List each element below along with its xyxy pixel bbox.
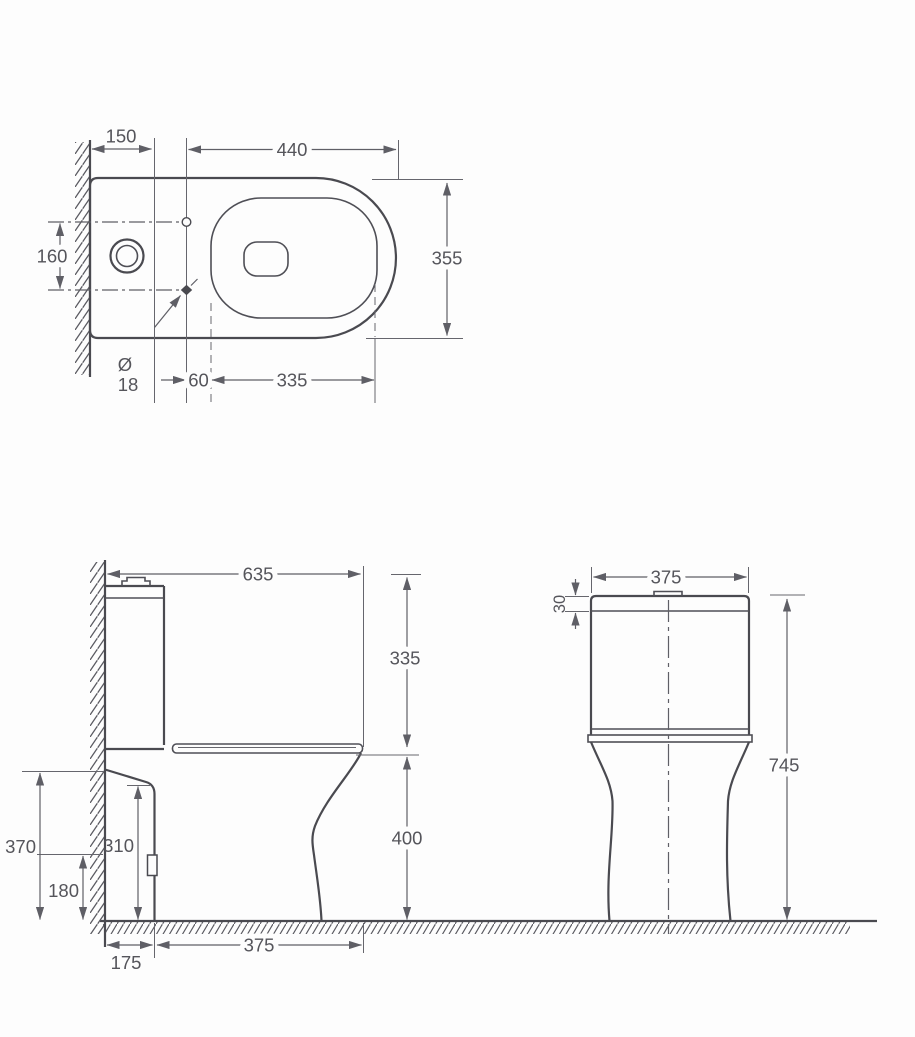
dim-label: 150: [106, 126, 137, 147]
wall-hatching: [75, 142, 90, 375]
dim-label: 160: [37, 246, 68, 267]
dim-lid-thickness: 30: [551, 579, 576, 629]
seat-opening-ring: [211, 198, 377, 318]
dim-opening-length: 335: [212, 370, 374, 391]
dim-label: 400: [392, 828, 423, 849]
water-inlet-inner: [117, 246, 138, 267]
marker-tick: [191, 279, 198, 286]
dim-label: 335: [277, 370, 308, 391]
dim-seat-height: 400: [392, 757, 423, 920]
dim-fixing-height: 310: [103, 787, 138, 920]
flush-button: [122, 578, 150, 587]
dim-rim-width: 355: [432, 183, 463, 336]
dim-label: 180: [48, 880, 79, 901]
seat-slab: [173, 744, 363, 753]
pedestal-right-profile: [727, 742, 749, 921]
floor: [100, 921, 877, 934]
floor-hatching: [103, 922, 850, 934]
dim-cistern-above-seat: 335: [390, 578, 421, 748]
dim-cistern-width: 375: [594, 567, 747, 588]
dim-label: 375: [651, 567, 682, 588]
water-inlet-outer: [111, 240, 144, 273]
flush-outlet: [244, 242, 288, 276]
dim-label: 355: [432, 248, 463, 269]
dim-back-height: 370: [5, 773, 40, 920]
seat-edge-band: [588, 735, 752, 742]
dim-inlet-centres: 160: [37, 224, 68, 289]
dim-label: 60: [188, 370, 209, 391]
dim-holes-to-opening: 60: [161, 370, 209, 391]
top-view: 150 440 355 160 60 335 Ø 18: [37, 126, 463, 404]
dim-back-offset: 175: [107, 945, 153, 973]
dim-wall-to-holes: 150: [92, 126, 152, 150]
dim-label: 745: [769, 755, 800, 776]
dim-label: 30: [551, 595, 569, 613]
dim-label: 310: [103, 835, 134, 856]
dim-rim-length: 440: [189, 139, 397, 160]
dim-seat-projection: 375: [157, 935, 362, 956]
dim-label: 335: [390, 648, 421, 669]
fixing-hole-marker: [182, 218, 191, 227]
dim-label: 18: [118, 374, 139, 395]
dim-label: 440: [277, 139, 308, 160]
pan-outline: [90, 178, 396, 338]
dim-label: 175: [111, 952, 142, 973]
dim-label: 635: [243, 564, 274, 585]
bowl-front-profile: [312, 753, 361, 921]
cistern-outline: [591, 596, 749, 735]
dim-label: 375: [244, 935, 275, 956]
note-hole-diameter: Ø 18: [118, 354, 139, 395]
front-view: 375 30 745: [551, 567, 805, 935]
dim-label: 370: [5, 836, 36, 857]
diameter-symbol: Ø: [118, 354, 132, 375]
pedestal-left-profile: [591, 742, 613, 921]
dim-overall-height: 745: [769, 599, 800, 920]
wall-hatching: [90, 562, 105, 934]
technical-drawing-canvas: 150 440 355 160 60 335 Ø 18: [0, 0, 915, 1037]
dim-outlet-height: 180: [48, 856, 83, 920]
fixing-bracket: [148, 855, 158, 876]
leader-arrow: [155, 296, 181, 328]
fixing-hole-marker-filled: [181, 285, 192, 295]
side-view: 635 335 400 370 310 180 175: [5, 560, 422, 973]
